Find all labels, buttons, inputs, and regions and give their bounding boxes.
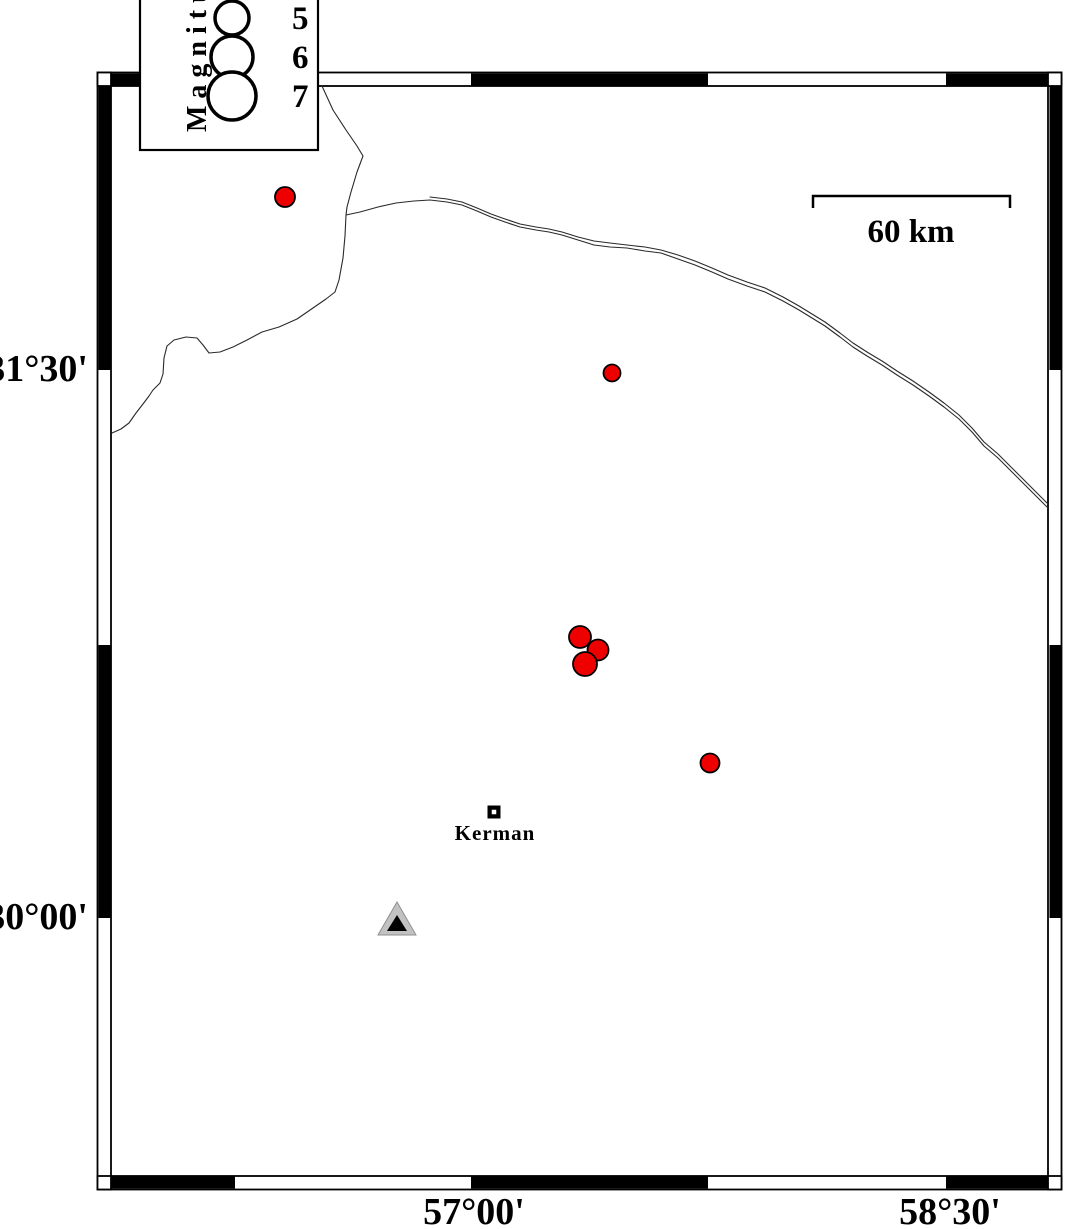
earthquake-epicenter-icon xyxy=(604,365,621,382)
latitude-label: 30°00' xyxy=(0,896,88,938)
scale-bar: 60 km xyxy=(813,196,1010,250)
frame-tick-segment xyxy=(946,1177,1048,1189)
earthquake-epicenter-icon xyxy=(701,754,720,773)
scale-bar-label: 60 km xyxy=(867,214,954,250)
axis-labels: 31°30'30°00'57°00'58°30' xyxy=(0,348,1001,1229)
city-square-icon-center xyxy=(492,810,497,815)
frame-tick-segment xyxy=(99,645,111,918)
legend-magnitude-circle-icon xyxy=(215,1,249,35)
city-label: Kerman xyxy=(455,821,536,845)
seismicity-map: Kerman 60 km Magnitude 567 31°30'30°00'5… xyxy=(0,0,1066,1229)
frame-tick-segment xyxy=(99,86,111,370)
latitude-label: 31°30' xyxy=(0,348,88,390)
boundary-east-b xyxy=(430,197,1048,504)
scale-bar-bracket xyxy=(813,196,1010,208)
frame-tick-segment xyxy=(471,1177,708,1189)
legend-magnitude-value: 5 xyxy=(292,1,309,37)
earthquake-epicenter-icon xyxy=(275,187,295,207)
frame-corner-square xyxy=(1048,1176,1062,1190)
frame-tick-segment xyxy=(1050,645,1062,918)
legend-magnitude-circle-icon xyxy=(208,72,256,120)
longitude-label: 57°00' xyxy=(423,1191,525,1229)
city-kerman: Kerman xyxy=(455,806,536,846)
magnitude-legend: Magnitude 567 xyxy=(140,0,318,150)
legend-magnitude-value: 6 xyxy=(292,40,309,76)
frame-tick-segment xyxy=(946,74,1048,86)
frame-tick-segment xyxy=(471,74,708,86)
earthquake-markers xyxy=(275,187,720,773)
legend-magnitude-value: 7 xyxy=(292,79,309,115)
frame-corner-square xyxy=(98,1176,112,1190)
seismicity-map-canvas: Kerman 60 km Magnitude 567 31°30'30°00'5… xyxy=(0,0,1066,1229)
frame-corner-square xyxy=(1048,73,1062,87)
legend-title: Magnitude xyxy=(182,0,213,132)
earthquake-epicenter-icon xyxy=(569,626,591,648)
frame-tick-segment xyxy=(111,1177,235,1189)
longitude-label: 58°30' xyxy=(899,1191,1001,1229)
frame-corner-square xyxy=(98,73,112,87)
station-marker xyxy=(378,902,416,935)
earthquake-epicenter-icon xyxy=(573,652,597,676)
frame-tick-segment xyxy=(1050,86,1062,370)
